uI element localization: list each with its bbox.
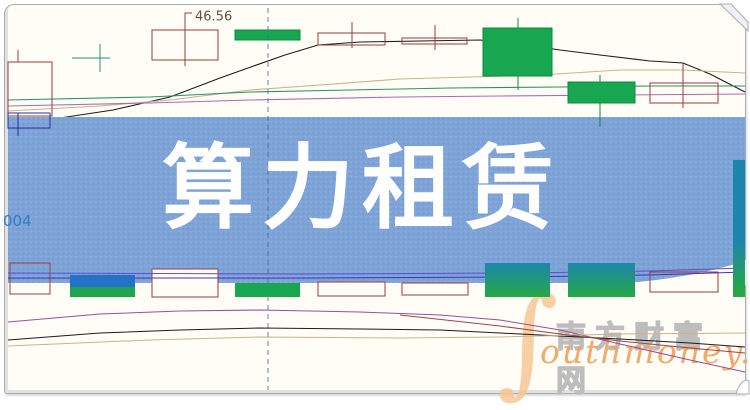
banner-title: 算力租赁 xyxy=(150,141,574,238)
volume-bar-gradient xyxy=(568,263,635,297)
volume-bar-green xyxy=(235,283,300,297)
price-label: 46.56 xyxy=(195,10,232,25)
volume-bar-hollow xyxy=(402,283,468,295)
price-annotation: 46.56 xyxy=(185,10,232,25)
candle-body xyxy=(568,82,635,103)
volume-bar-blue xyxy=(70,275,135,287)
lower-indicator-panel xyxy=(8,310,745,372)
volume-bar-green xyxy=(70,287,135,297)
price-leader-line xyxy=(185,13,192,24)
ind-red xyxy=(400,315,745,353)
volume-bar-hollow xyxy=(318,282,385,296)
corner-curl xyxy=(736,380,749,394)
candle-body xyxy=(8,62,52,116)
volume-bar-gradient xyxy=(485,263,550,297)
candle-body xyxy=(483,28,552,76)
code-label: 004 xyxy=(3,212,32,230)
upper-candlestick-panel xyxy=(8,14,745,124)
candle-body xyxy=(733,160,745,297)
